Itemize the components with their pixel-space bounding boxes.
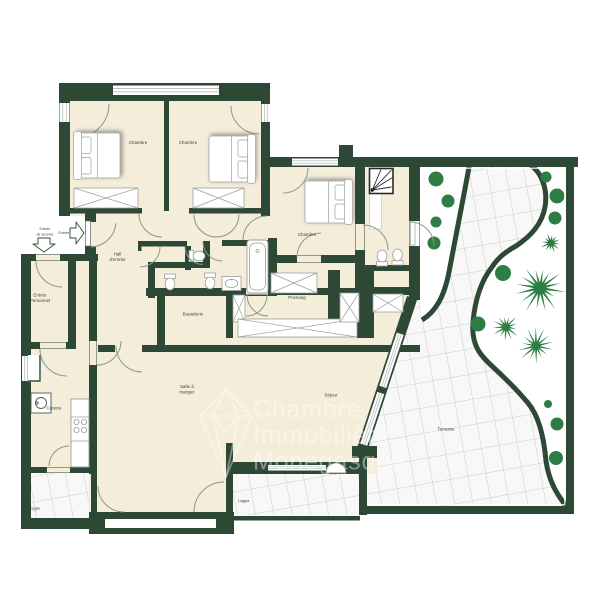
svg-text:de service: de service <box>37 232 54 236</box>
svg-text:Chambre: Chambre <box>129 140 148 145</box>
svg-text:Salle à: Salle à <box>180 384 194 389</box>
svg-text:Pressing: Pressing <box>288 295 306 300</box>
svg-text:Chambre: Chambre <box>179 140 198 145</box>
svg-text:d'entrée: d'entrée <box>109 257 126 262</box>
svg-text:Cuisine: Cuisine <box>46 406 62 411</box>
svg-text:Chambre: Chambre <box>253 396 361 424</box>
svg-text:Hall: Hall <box>114 252 122 257</box>
svg-text:Loggia: Loggia <box>238 499 249 503</box>
svg-text:Chambre: Chambre <box>298 232 317 237</box>
svg-text:Entrée: Entrée <box>59 231 70 235</box>
svg-text:Immobilière: Immobilière <box>253 422 391 450</box>
svg-text:manger: manger <box>179 389 195 394</box>
svg-text:Monégasque: Monégasque <box>253 448 406 476</box>
svg-text:Terrasse: Terrasse <box>437 427 455 432</box>
svg-text:Entrée: Entrée <box>33 293 47 298</box>
svg-text:Buanderie: Buanderie <box>183 312 204 317</box>
svg-text:Personnel: Personnel <box>30 298 50 303</box>
svg-text:Entrée: Entrée <box>40 227 51 231</box>
